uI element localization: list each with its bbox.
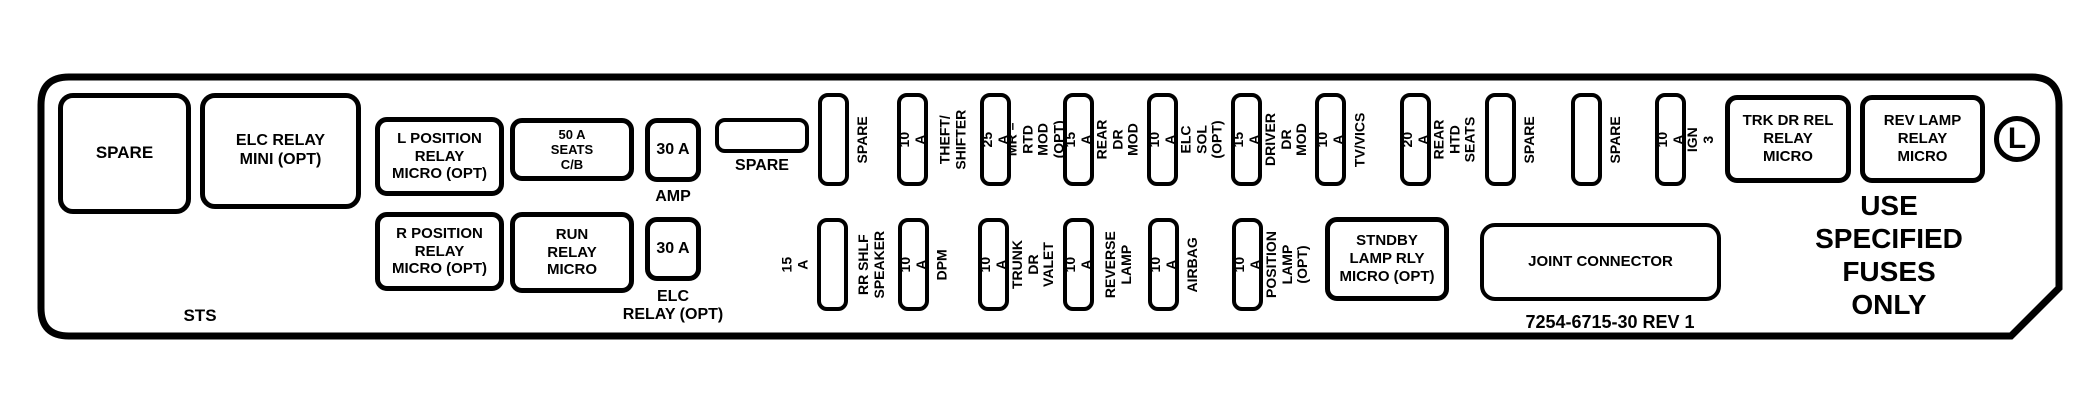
- l-position-relay-label: L POSITION RELAY MICRO (OPT): [392, 130, 487, 183]
- fuse-tv-vics-label: TV/VICS: [1348, 93, 1372, 186]
- trk-dr-rel-relay-label: TRK DR REL RELAY MICRO: [1743, 112, 1834, 165]
- fuse-spare-top-2: [1485, 93, 1516, 186]
- elc-relay-mini-label: ELC RELAY MINI (OPT): [236, 132, 325, 170]
- fuse-rear-htd-seats-amp: 20 A: [1400, 128, 1431, 151]
- fuse-rr-shlf-speaker: [817, 218, 848, 311]
- l-position-relay: L POSITION RELAY MICRO (OPT): [375, 117, 504, 196]
- fuse-ign3-amp: 10 A: [1655, 128, 1686, 151]
- part-number: 7254-6715-30 REV 1: [1500, 312, 1720, 333]
- fuse-position-lamp: 10 A: [1232, 218, 1263, 311]
- fuse-rr-shlf-speaker-label: RR SHLF SPEAKER: [850, 218, 894, 311]
- fuse-rear-dr-mod-amp: 15 A: [1063, 128, 1094, 151]
- fuse-rear-htd-seats: 20 A: [1400, 93, 1431, 186]
- fuse-theft-shifter-label: THEFT/ SHIFTER: [930, 93, 976, 186]
- elc-relay-mini: ELC RELAY MINI (OPT): [200, 93, 361, 209]
- fuse-rear-htd-seats-label: REAR HTD SEATS: [1433, 93, 1477, 186]
- fuse-theft-shifter: 10 A: [897, 93, 928, 186]
- run-relay-micro-label: RUN RELAY MICRO: [547, 226, 597, 279]
- spare-large-relay-label: SPARE: [96, 143, 153, 163]
- fuse-trunk-dr-valet-label: TRUNK DR VALET: [1011, 218, 1055, 311]
- elc-relay-fuse-caption: ELC RELAY (OPT): [613, 288, 733, 325]
- joint-connector: JOINT CONNECTOR: [1480, 223, 1721, 301]
- seats-circuit-breaker-label: 50 A SEATS C/B: [551, 127, 593, 173]
- fuse-box-diagram: SPARE ELC RELAY MINI (OPT) L POSITION RE…: [0, 0, 2090, 413]
- fuse-spare-top-3: [1571, 93, 1602, 186]
- fuse-reverse-lamp-amp: 10 A: [1063, 253, 1094, 276]
- fuse-elc-sol: 10 A: [1147, 93, 1178, 186]
- fuse-dpm-amp: 10 A: [898, 253, 929, 276]
- fuse-mr-rtd-mod-label: MR – RTD MOD (OPT): [1013, 93, 1059, 186]
- model-label: STS: [160, 306, 240, 326]
- l-circle-marker-letter: L: [2008, 122, 2026, 156]
- spare-large-relay: SPARE: [58, 93, 191, 214]
- fuse-reverse-lamp-label: REVERSE LAMP: [1096, 218, 1140, 311]
- stndby-lamp-relay-label: STNDBY LAMP RLY MICRO (OPT): [1340, 232, 1435, 285]
- r-position-relay: R POSITION RELAY MICRO (OPT): [375, 212, 504, 291]
- elc-relay-fuse-30a: 30 A: [645, 217, 701, 281]
- fuse-spare-top-2-label: SPARE: [1518, 93, 1542, 186]
- fuse-rear-dr-mod-label: REAR DR MOD: [1096, 93, 1140, 186]
- fuse-tv-vics-amp: 10 A: [1315, 128, 1346, 151]
- fuse-elc-sol-amp: 10 A: [1147, 128, 1178, 151]
- elc-relay-fuse-30a-value: 30 A: [656, 240, 689, 259]
- rev-lamp-relay: REV LAMP RELAY MICRO: [1860, 95, 1985, 183]
- fuse-spare-top-1-label: SPARE: [851, 93, 875, 186]
- fuse-ign3-label: IGN 3: [1688, 93, 1712, 186]
- trk-dr-rel-relay: TRK DR REL RELAY MICRO: [1725, 95, 1851, 183]
- fuse-reverse-lamp: 10 A: [1063, 218, 1094, 311]
- fuse-trunk-dr-valet: 10 A: [978, 218, 1009, 311]
- r-position-relay-label: R POSITION RELAY MICRO (OPT): [392, 225, 487, 278]
- fuse-spare-top-3-label: SPARE: [1604, 93, 1628, 186]
- spare-horizontal-fuse: [715, 118, 809, 153]
- fuse-spare-top-1: [818, 93, 849, 186]
- amp-fuse-caption: AMP: [623, 188, 723, 206]
- fuse-driver-dr-mod-amp: 15 A: [1231, 128, 1262, 151]
- fuse-position-lamp-label: POSITION LAMP (OPT): [1265, 218, 1309, 311]
- amp-fuse-30a: 30 A: [645, 118, 701, 182]
- fuse-trunk-dr-valet-amp: 10 A: [978, 253, 1009, 276]
- fuse-dpm: 10 A: [898, 218, 929, 311]
- spare-horizontal-fuse-caption: SPARE: [715, 157, 809, 175]
- fuse-driver-dr-mod-label: DRIVER DR MOD: [1264, 93, 1308, 186]
- run-relay-micro: RUN RELAY MICRO: [510, 212, 634, 293]
- fuse-airbag: 10 A: [1148, 218, 1179, 311]
- fuse-elc-sol-label: ELC SOL (OPT): [1180, 93, 1224, 186]
- seats-circuit-breaker: 50 A SEATS C/B: [510, 118, 634, 181]
- fuse-theft-shifter-amp: 10 A: [897, 128, 928, 151]
- stndby-lamp-relay: STNDBY LAMP RLY MICRO (OPT): [1325, 217, 1449, 301]
- fuse-rr-shlf-amp: 15 A: [784, 218, 806, 311]
- warning-text: USE SPECIFIED FUSES ONLY: [1814, 189, 1964, 321]
- fuse-airbag-amp: 10 A: [1148, 253, 1179, 276]
- l-circle-marker: L: [1994, 116, 2040, 162]
- joint-connector-label: JOINT CONNECTOR: [1528, 253, 1673, 271]
- fuse-driver-dr-mod: 15 A: [1231, 93, 1262, 186]
- fuse-tv-vics: 10 A: [1315, 93, 1346, 186]
- fuse-ign3: 10 A: [1655, 93, 1686, 186]
- fuse-position-lamp-amp: 10 A: [1232, 253, 1263, 276]
- fuse-airbag-label: AIRBAG: [1181, 218, 1205, 311]
- rev-lamp-relay-label: REV LAMP RELAY MICRO: [1884, 112, 1962, 165]
- fuse-dpm-label: DPM: [931, 218, 955, 311]
- amp-fuse-30a-value: 30 A: [656, 141, 689, 160]
- fuse-rear-dr-mod: 15 A: [1063, 93, 1094, 186]
